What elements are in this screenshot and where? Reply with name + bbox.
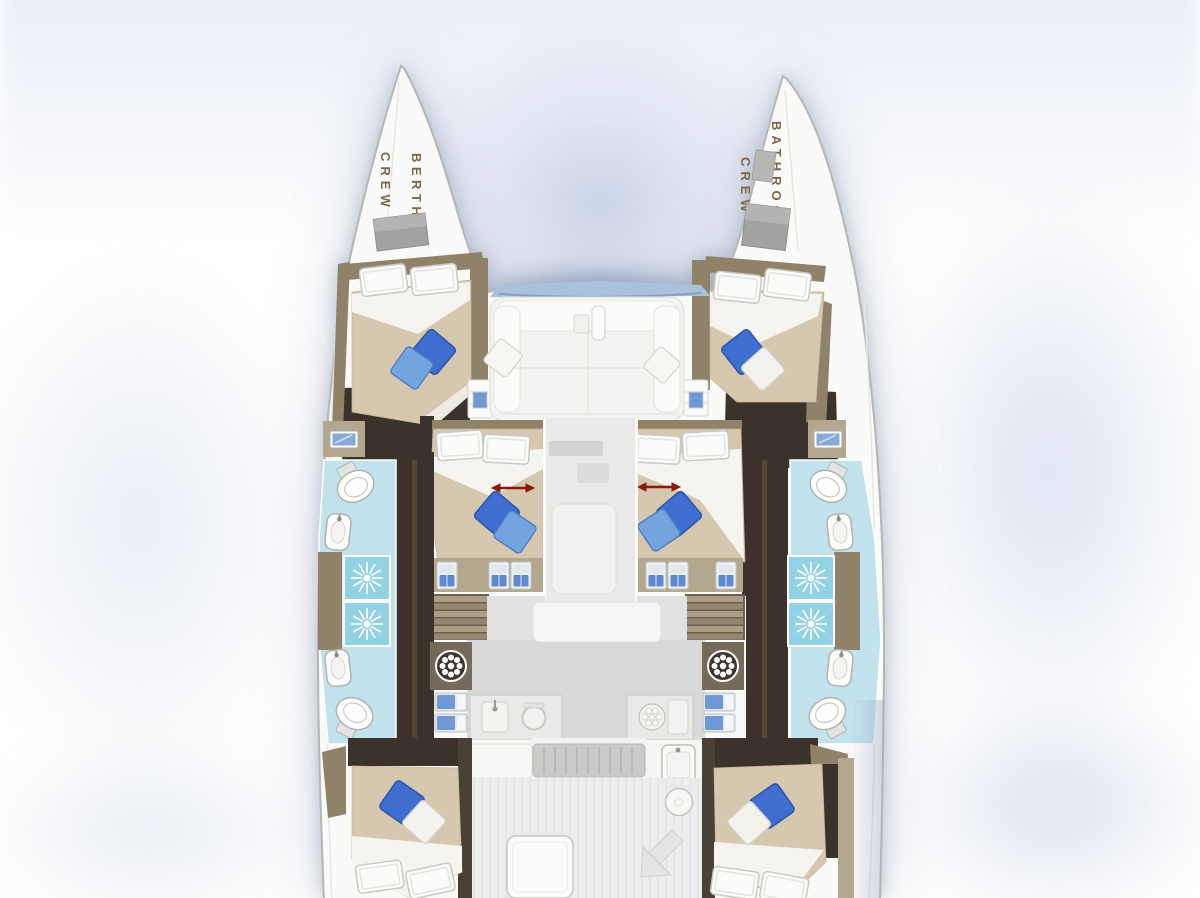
corridor-panel [762, 460, 767, 750]
hob-burner [653, 720, 659, 726]
wardrobe-icon [668, 562, 688, 589]
hull-side-shading [848, 700, 884, 898]
port-bow-label-1: CREW [378, 152, 393, 212]
faucet-icon [494, 700, 496, 708]
bed-pillow [713, 271, 762, 304]
deck-plan: CREW BERTH CREW BATHROOM [0, 0, 1200, 898]
deck-fitting [574, 315, 589, 333]
fridge-drawer-icon [703, 714, 735, 732]
sink-icon [324, 513, 352, 551]
bathroom-cabinet [834, 552, 860, 650]
fridge-drawer-icon [435, 714, 467, 732]
bed-pillow [359, 263, 408, 296]
counter-module [668, 700, 688, 734]
sink-icon [826, 513, 854, 551]
washing-machine-icon [708, 651, 738, 681]
hob-burner [656, 714, 662, 720]
bed-headboard [432, 420, 544, 429]
sink-icon [826, 649, 854, 687]
cockpit-table [507, 836, 573, 898]
hull-window-icon [330, 431, 358, 448]
washing-machine-icon [436, 651, 466, 681]
port-utility-column [430, 642, 472, 732]
faucet-icon [676, 748, 681, 753]
companionway-stairs [429, 594, 489, 640]
wardrobe-icon [437, 562, 457, 589]
cabin-wall [470, 258, 488, 390]
cabin-wall [348, 738, 466, 766]
port-bathroom [318, 452, 434, 760]
wardrobe-icon [511, 562, 531, 589]
deck-hatch-port [373, 213, 429, 251]
bed-pillow [763, 268, 812, 301]
entry-step [549, 441, 603, 456]
bed-pillow [483, 434, 530, 464]
companionway-stairs [685, 594, 745, 640]
hob-burner [642, 714, 648, 720]
fridge-drawer-icon [703, 693, 735, 711]
sliding-door-panel [552, 504, 616, 594]
hob-burner [653, 708, 659, 714]
pot-icon [523, 707, 546, 730]
sink-icon [324, 649, 352, 687]
bed-headboard [632, 420, 742, 429]
deck-hatch-starboard [742, 203, 791, 250]
cabin-wall [692, 260, 710, 390]
fridge-drawer-icon [435, 693, 467, 711]
side-locker-blue [473, 392, 487, 408]
pot-icon [524, 703, 544, 708]
hob-burner [650, 715, 655, 720]
wardrobe-icon [646, 562, 666, 589]
hob-burner [646, 720, 652, 726]
cockpit-bench [533, 744, 645, 777]
saloon-island-seat [533, 602, 661, 642]
wardrobe-icon [716, 562, 736, 589]
foredeck-lounge [473, 281, 710, 421]
port-bow-label-2: BERTH [409, 153, 424, 220]
hob-burner [646, 708, 652, 714]
bed-pillow [710, 866, 759, 898]
cabin-wall [712, 738, 818, 768]
bed-pillow [436, 430, 484, 461]
entry-step [577, 463, 609, 483]
cockpit-seat [462, 744, 532, 778]
wardrobe-icon [489, 562, 509, 589]
bed-pillow [355, 860, 404, 894]
bed-pillow [634, 434, 681, 464]
bed-pillow [410, 263, 459, 296]
side-locker-blue [689, 392, 703, 408]
corridor-panel [412, 460, 417, 750]
hull-window-icon [814, 431, 842, 448]
deck-hatch-starboard-small [752, 150, 776, 182]
cockpit-table-round [666, 789, 693, 816]
cockpit-sink-basin [667, 752, 690, 778]
yacht-deck-plan-image: CREW BERTH CREW BATHROOM [0, 0, 1200, 898]
mast-foot [592, 306, 605, 340]
bed-pillow [682, 431, 729, 461]
bathroom-cabinet [318, 552, 342, 650]
